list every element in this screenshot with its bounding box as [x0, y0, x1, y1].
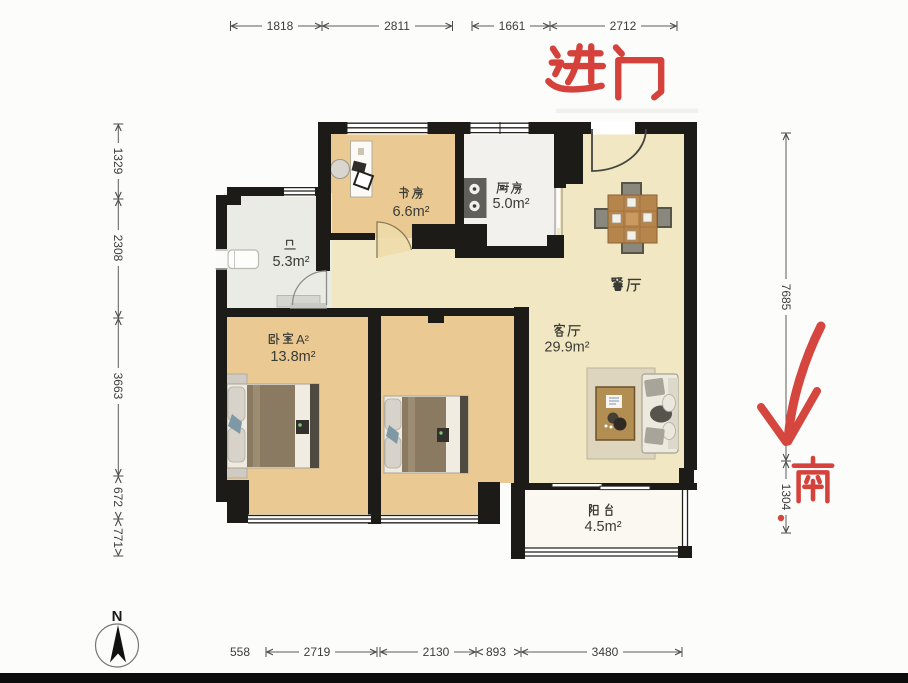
svg-text:1329: 1329 [111, 148, 125, 175]
svg-text:2308: 2308 [111, 235, 125, 262]
svg-text:2719: 2719 [304, 645, 331, 659]
svg-text:558: 558 [230, 645, 250, 659]
svg-text:1661: 1661 [499, 19, 526, 33]
svg-text:7685: 7685 [779, 284, 793, 311]
svg-text:5.0m²: 5.0m² [492, 196, 529, 212]
svg-text:893: 893 [486, 645, 506, 659]
svg-text:5.3m²: 5.3m² [272, 254, 309, 270]
svg-text:6.6m²: 6.6m² [392, 204, 429, 220]
svg-text:1304: 1304 [779, 484, 793, 511]
svg-text:771: 771 [111, 528, 125, 548]
svg-text:29.9m²: 29.9m² [544, 340, 589, 356]
svg-text:672: 672 [111, 487, 125, 507]
svg-text:4.5m²: 4.5m² [584, 519, 621, 535]
svg-text:2130: 2130 [423, 645, 450, 659]
svg-text:2811: 2811 [384, 19, 410, 33]
svg-text:2712: 2712 [610, 19, 637, 33]
svg-text:3480: 3480 [592, 645, 619, 659]
svg-text:N: N [112, 608, 123, 625]
svg-text:3663: 3663 [111, 373, 125, 400]
svg-text:A²: A² [296, 332, 310, 347]
svg-text:1818: 1818 [267, 19, 294, 33]
svg-text:13.8m²: 13.8m² [270, 349, 315, 365]
